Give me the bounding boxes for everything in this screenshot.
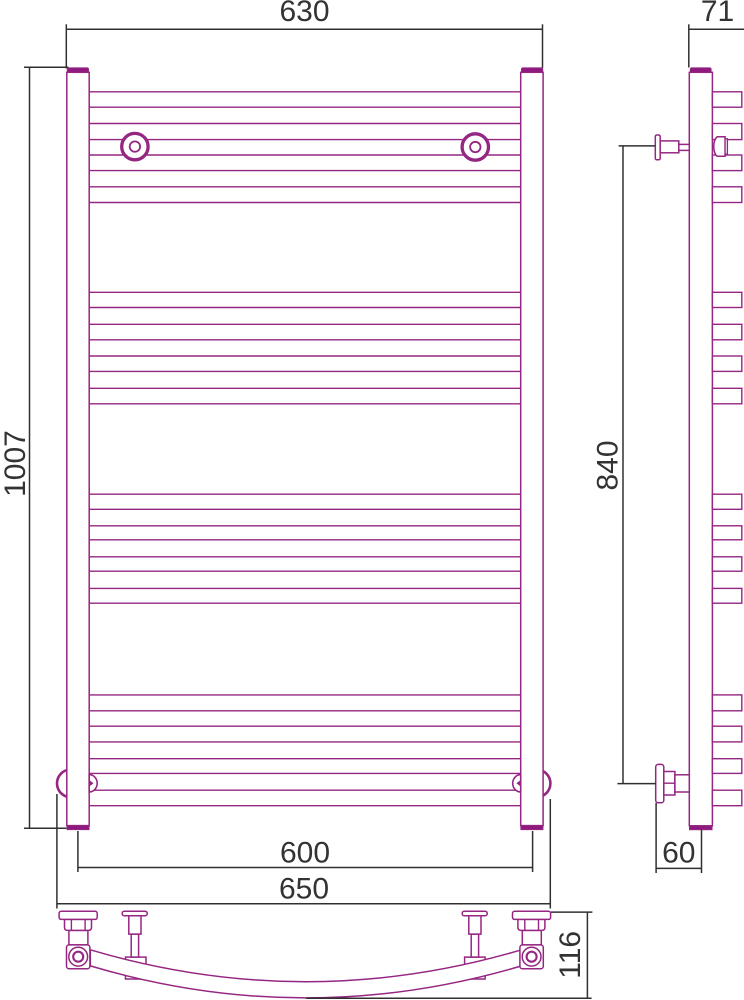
svg-text:60: 60 (662, 837, 695, 870)
svg-text:116: 116 (554, 931, 587, 979)
svg-text:630: 630 (279, 0, 329, 28)
svg-text:650: 650 (279, 873, 329, 906)
svg-text:71: 71 (701, 0, 734, 28)
svg-text:840: 840 (592, 440, 625, 490)
svg-text:1007: 1007 (0, 430, 32, 497)
svg-text:600: 600 (280, 837, 330, 870)
